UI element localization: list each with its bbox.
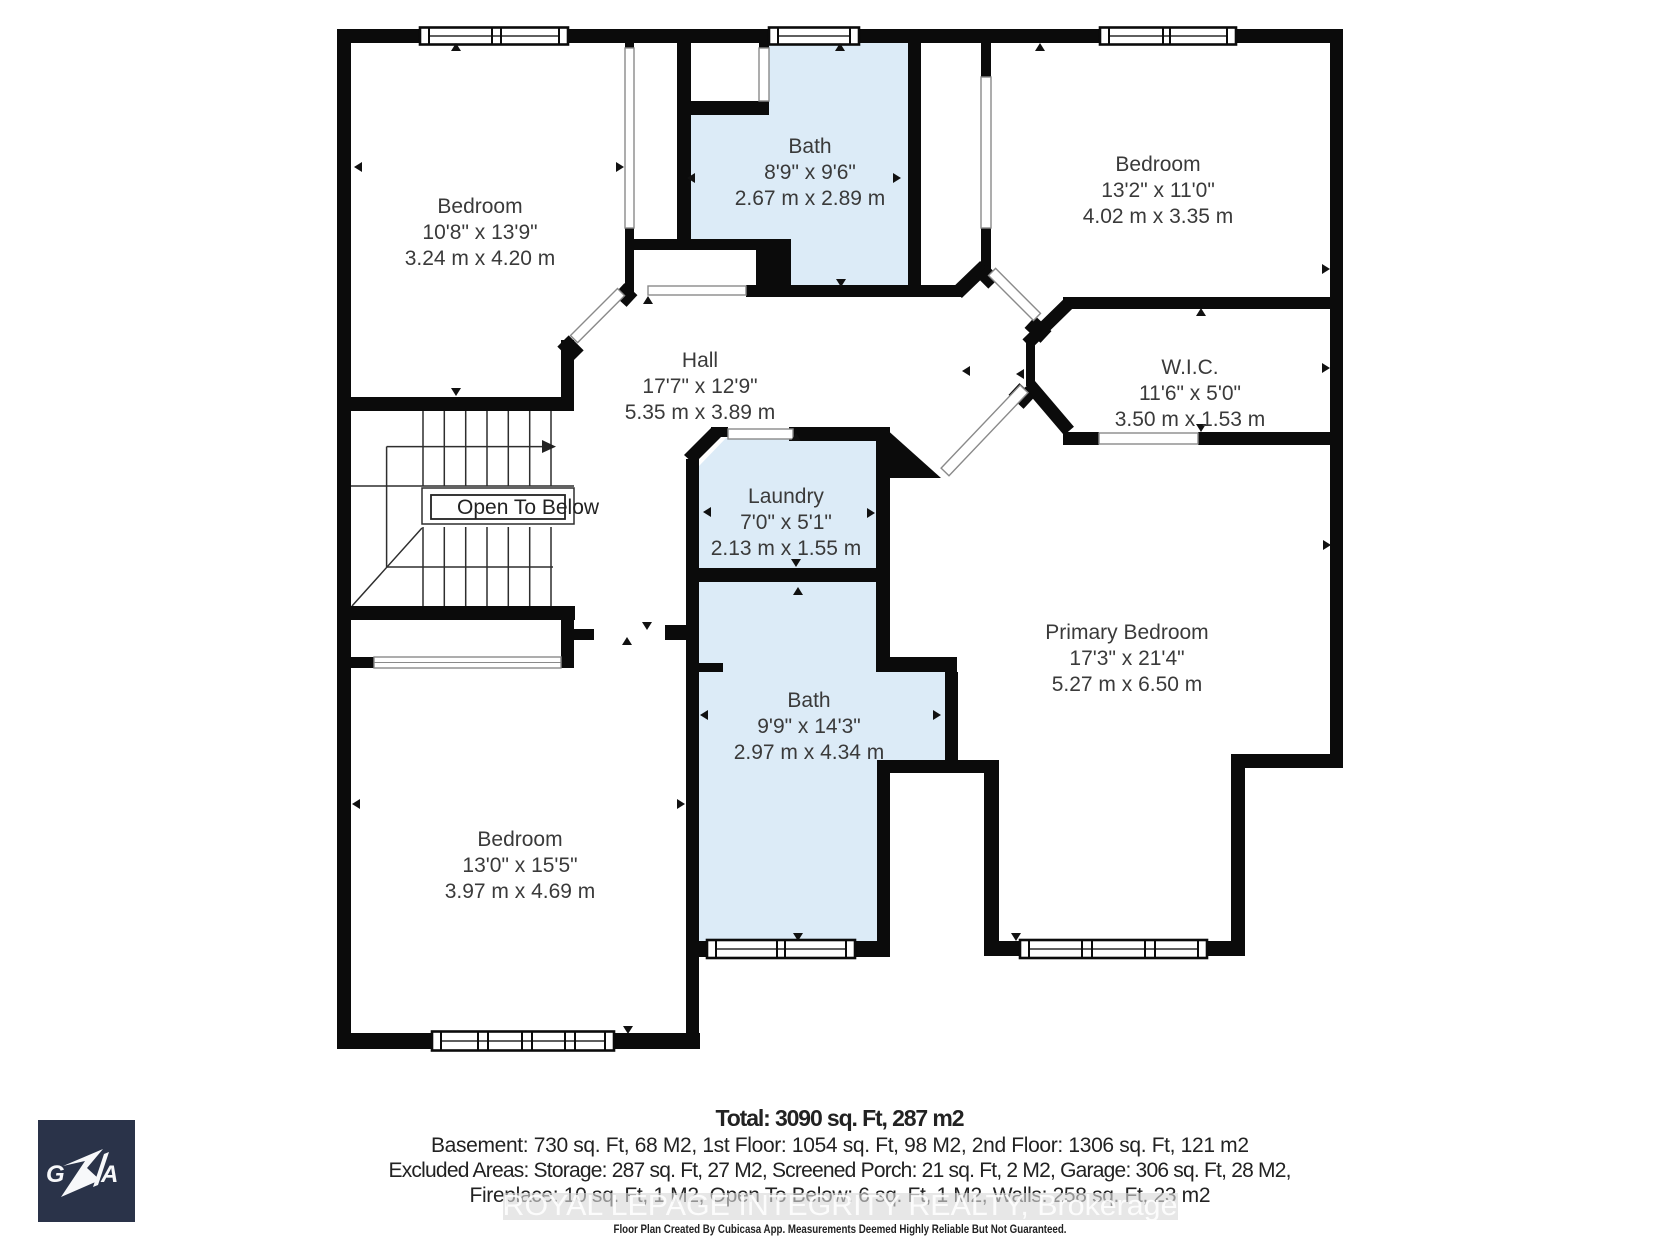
svg-text:3.50 m x 1.53 m: 3.50 m x 1.53 m [1115, 408, 1266, 431]
svg-text:2.67 m x 2.89 m: 2.67 m x 2.89 m [735, 187, 886, 210]
svg-text:Basement: 730 sq. Ft, 68 M2, 1: Basement: 730 sq. Ft, 68 M2, 1st Floor: … [431, 1134, 1249, 1157]
svg-text:Excluded Areas: Storage: 287 s: Excluded Areas: Storage: 287 sq. Ft, 27 … [389, 1159, 1292, 1182]
svg-text:Total: 3090 sq. Ft, 287 m2: Total: 3090 sq. Ft, 287 m2 [716, 1105, 965, 1131]
svg-text:2.13 m x 1.55 m: 2.13 m x 1.55 m [711, 537, 862, 560]
svg-text:2.97 m x 4.34 m: 2.97 m x 4.34 m [734, 741, 885, 764]
svg-text:13'0" x 15'5": 13'0" x 15'5" [462, 854, 577, 877]
svg-text:7'0" x 5'1": 7'0" x 5'1" [740, 511, 832, 534]
svg-text:Bath: Bath [787, 689, 830, 712]
svg-text:13'2" x 11'0": 13'2" x 11'0" [1101, 179, 1215, 202]
svg-text:Bedroom: Bedroom [477, 828, 562, 851]
svg-text:4.02 m x 3.35 m: 4.02 m x 3.35 m [1083, 205, 1234, 228]
svg-text:Bedroom: Bedroom [437, 195, 522, 218]
svg-text:ROYAL LEPAGE INTEGRITY REALTY,: ROYAL LEPAGE INTEGRITY REALTY, Brokerage [503, 1190, 1178, 1222]
svg-text:17'3" x 21'4": 17'3" x 21'4" [1069, 647, 1184, 670]
svg-text:Primary Bedroom: Primary Bedroom [1045, 621, 1208, 644]
svg-text:Hall: Hall [682, 349, 718, 372]
svg-text:Bath: Bath [788, 135, 831, 158]
svg-text:11'6" x 5'0": 11'6" x 5'0" [1139, 382, 1241, 405]
svg-text:10'8" x 13'9": 10'8" x 13'9" [422, 221, 537, 244]
svg-text:Open To Below: Open To Below [457, 496, 600, 519]
svg-text:5.35 m x 3.89 m: 5.35 m x 3.89 m [625, 401, 776, 424]
svg-text:8'9" x 9'6": 8'9" x 9'6" [764, 161, 856, 184]
svg-text:Floor Plan Created By Cubicasa: Floor Plan Created By Cubicasa App. Meas… [614, 1224, 1067, 1236]
svg-text:9'9" x 14'3": 9'9" x 14'3" [757, 715, 861, 738]
svg-text:3.97 m x 4.69 m: 3.97 m x 4.69 m [445, 880, 596, 903]
svg-text:3.24 m x 4.20 m: 3.24 m x 4.20 m [405, 247, 556, 270]
svg-text:Laundry: Laundry [748, 485, 824, 508]
svg-text:G: G [46, 1161, 65, 1188]
svg-text:17'7" x 12'9": 17'7" x 12'9" [642, 375, 757, 398]
svg-text:Bedroom: Bedroom [1115, 153, 1200, 176]
svg-text:W.I.C.: W.I.C. [1161, 356, 1218, 379]
svg-text:5.27 m x 6.50 m: 5.27 m x 6.50 m [1052, 673, 1203, 696]
